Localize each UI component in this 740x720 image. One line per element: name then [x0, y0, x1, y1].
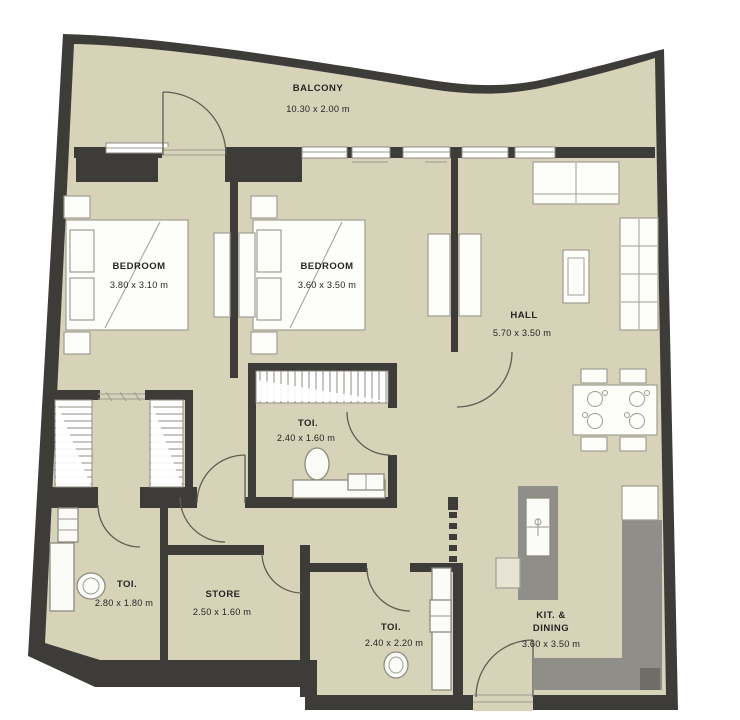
room-name: KIT. & — [536, 610, 565, 621]
bed-icon — [253, 220, 365, 330]
tv-unit-icon — [459, 234, 481, 316]
room-name: BEDROOM — [300, 261, 353, 272]
kitchen-counter — [622, 520, 662, 660]
nightstand-icon — [251, 332, 277, 354]
closet-icon — [55, 400, 92, 487]
fridge-icon — [622, 486, 658, 520]
floor-plan-page: BALCONY 10.30 x 2.00 m BEDROOM 3.80 x 3.… — [0, 0, 740, 720]
room-name: TOI. — [381, 622, 401, 633]
wall-bedroom-hall — [451, 158, 458, 352]
wardrobe-icon — [239, 233, 255, 317]
room-dims: 2.40 x 1.60 m — [277, 433, 335, 443]
wall-toilet-mid-left — [248, 363, 256, 508]
stove-icon — [640, 668, 660, 690]
wardrobe-icon — [428, 234, 450, 316]
room-name: STORE — [205, 589, 240, 600]
bedroom-left-furniture — [64, 196, 188, 354]
nightstand-icon — [251, 196, 277, 218]
room-dims: 2.80 x 1.80 m — [95, 598, 153, 608]
room-name: DINING — [533, 623, 569, 634]
cabinet-icon — [430, 600, 451, 632]
room-dims: 3.60 x 3.50 m — [522, 639, 580, 649]
stool-icon — [496, 558, 520, 588]
sofa-icon — [533, 162, 619, 204]
cabinet-icon — [58, 508, 78, 542]
room-dims: 2.40 x 2.20 m — [365, 638, 423, 648]
cabinet-icon — [348, 474, 384, 490]
wall-store-left — [160, 508, 168, 660]
room-name: TOI. — [298, 418, 318, 429]
room-dims: 3.60 x 3.50 m — [298, 280, 356, 290]
room-name: BALCONY — [293, 83, 344, 94]
wall-toilet-bottom-right — [453, 563, 463, 697]
closet-icon — [150, 400, 183, 487]
shower-icon — [50, 543, 74, 611]
nightstand-icon — [64, 196, 90, 218]
room-dims: 5.70 x 3.50 m — [493, 328, 551, 338]
room-name: TOI. — [117, 579, 137, 590]
sink-icon — [526, 498, 550, 556]
toilet-icon — [77, 573, 105, 599]
shower-icon — [256, 371, 388, 403]
room-dims: 10.30 x 2.00 m — [286, 104, 350, 114]
wall-bedrooms-divider — [230, 158, 238, 378]
room-name: BEDROOM — [112, 261, 165, 272]
room-name: HALL — [510, 310, 537, 321]
nightstand-icon — [64, 332, 90, 354]
side-table-icon — [563, 250, 589, 303]
wall-fin-bedroom-left — [76, 155, 158, 182]
toilet-icon — [305, 448, 329, 480]
room-dims: 2.50 x 1.60 m — [193, 607, 251, 617]
toilet-icon — [384, 652, 408, 678]
bench-icon — [620, 218, 658, 330]
room-dims: 3.80 x 3.10 m — [110, 280, 168, 290]
bed-icon — [66, 220, 188, 330]
floor-plan-canvas: BALCONY 10.30 x 2.00 m BEDROOM 3.80 x 3.… — [0, 0, 740, 720]
kitchen-island-icon — [518, 486, 558, 600]
wardrobe-icon — [214, 233, 230, 317]
